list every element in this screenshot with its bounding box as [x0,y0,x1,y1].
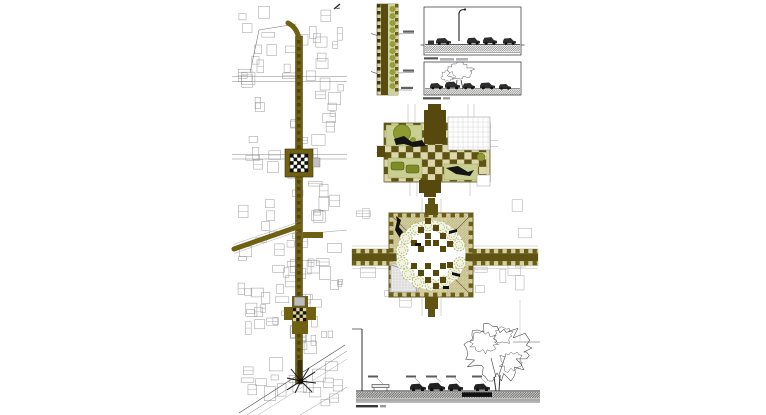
planting-strip-plan [371,4,414,95]
site-masterplan [232,4,347,415]
drawing-scene [0,0,766,415]
street-section-upper [419,7,526,61]
street-section-lower [420,62,524,99]
drawing-sheet [0,0,766,415]
intersection-detail-plan [376,104,498,197]
street-elevation [350,300,545,407]
piazza-detail-plan [352,198,538,317]
